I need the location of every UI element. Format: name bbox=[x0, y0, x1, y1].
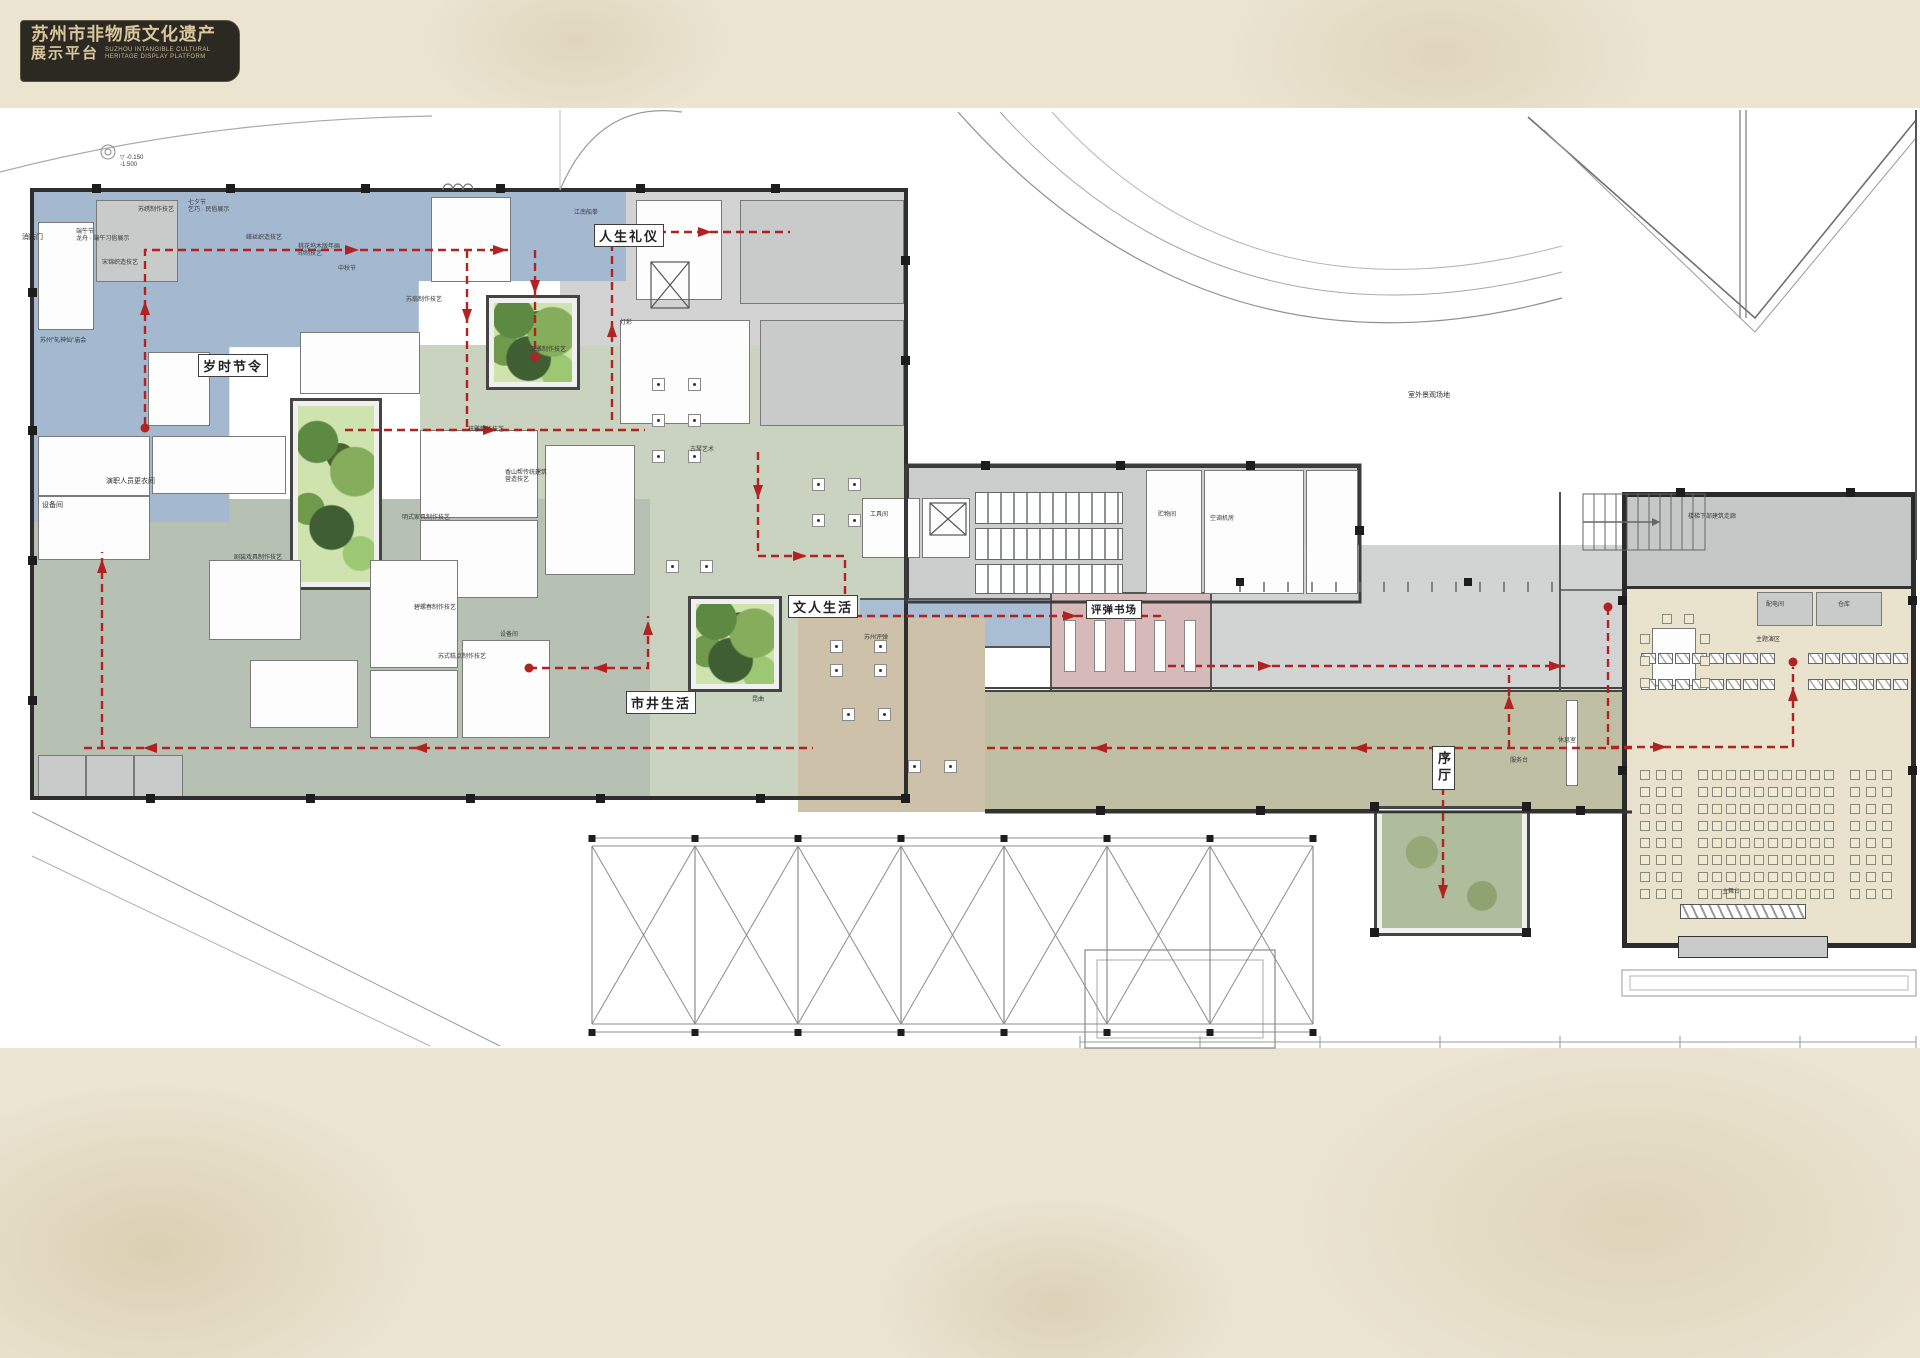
seat bbox=[1740, 821, 1750, 831]
exhibit-table bbox=[666, 560, 679, 573]
exhibit-table bbox=[652, 450, 665, 463]
plan-label: 苏式糕点制作技艺 bbox=[438, 654, 486, 661]
seat bbox=[1740, 804, 1750, 814]
plan-label: 香山帮传统建筑 营造技艺 bbox=[505, 470, 547, 484]
seat bbox=[1640, 787, 1650, 797]
seat bbox=[1882, 804, 1892, 814]
seat bbox=[1796, 770, 1806, 780]
seat bbox=[1866, 787, 1876, 797]
seat bbox=[1740, 770, 1750, 780]
bench-seat bbox=[1825, 653, 1840, 664]
plan-linework bbox=[0, 0, 1920, 1358]
exhibit-table bbox=[878, 708, 891, 721]
exhibit-table bbox=[688, 378, 701, 391]
seat bbox=[1866, 838, 1876, 848]
plan-label: 工具间 bbox=[870, 512, 888, 519]
bench-seat bbox=[1675, 653, 1690, 664]
bench-seat bbox=[1859, 653, 1874, 664]
seat bbox=[1882, 770, 1892, 780]
seat bbox=[1824, 821, 1834, 831]
bench-seat bbox=[1658, 653, 1673, 664]
plan-label: 文人生活 bbox=[788, 595, 858, 618]
seat bbox=[1810, 821, 1820, 831]
plan-label: 岁时节令 bbox=[198, 354, 268, 377]
plan-label: 市井生活 bbox=[626, 691, 696, 714]
exhibit-table bbox=[700, 560, 713, 573]
bench-seat bbox=[1760, 653, 1775, 664]
seat bbox=[1866, 804, 1876, 814]
seat bbox=[1810, 872, 1820, 882]
seat bbox=[1810, 838, 1820, 848]
seat bbox=[1782, 821, 1792, 831]
seat bbox=[1782, 872, 1792, 882]
seat bbox=[1640, 872, 1650, 882]
exhibit-table bbox=[652, 378, 665, 391]
seat bbox=[1810, 804, 1820, 814]
seat bbox=[1698, 889, 1708, 899]
seat bbox=[1850, 821, 1860, 831]
exhibit-table bbox=[908, 760, 921, 773]
seat bbox=[1672, 889, 1682, 899]
seat bbox=[1672, 770, 1682, 780]
seat bbox=[1712, 838, 1722, 848]
bench-seat bbox=[1842, 653, 1857, 664]
seat bbox=[1866, 821, 1876, 831]
bench-seat bbox=[1743, 679, 1758, 690]
seat bbox=[1640, 804, 1650, 814]
plan-label: 设备间 bbox=[42, 502, 63, 510]
seat bbox=[1796, 821, 1806, 831]
seat bbox=[1656, 889, 1666, 899]
bench-seat bbox=[1658, 679, 1673, 690]
plan-label: 设备间 bbox=[500, 632, 518, 639]
seat bbox=[1768, 855, 1778, 865]
plan-label: 主题演区 bbox=[1756, 637, 1780, 644]
seat bbox=[1824, 855, 1834, 865]
seat bbox=[1882, 821, 1892, 831]
seat bbox=[1768, 770, 1778, 780]
plan-label: 明式家具制作技艺 bbox=[402, 515, 450, 522]
floorplan-screenshot: 苏州市非物质文化遗产 展示平台 SUZHOU INTANGIBLE CULTUR… bbox=[0, 0, 1920, 1358]
exhibit-table bbox=[830, 664, 843, 677]
seat bbox=[1672, 821, 1682, 831]
bench-seat bbox=[1893, 653, 1908, 664]
seat bbox=[1726, 838, 1736, 848]
seat bbox=[1726, 821, 1736, 831]
plan-label: 序厅 bbox=[1432, 746, 1455, 790]
seat bbox=[1698, 787, 1708, 797]
seat bbox=[1656, 838, 1666, 848]
seat bbox=[1882, 889, 1892, 899]
seat bbox=[1810, 889, 1820, 899]
seat bbox=[1726, 804, 1736, 814]
seat bbox=[1850, 872, 1860, 882]
seat bbox=[1754, 804, 1764, 814]
seat bbox=[1640, 656, 1650, 666]
seat bbox=[1796, 855, 1806, 865]
plan-label: 昆曲 bbox=[752, 697, 764, 704]
wall-columns bbox=[28, 184, 1917, 937]
seat bbox=[1740, 855, 1750, 865]
seat bbox=[1712, 770, 1722, 780]
seat bbox=[1754, 770, 1764, 780]
seat bbox=[1796, 804, 1806, 814]
seat bbox=[1712, 855, 1722, 865]
seat bbox=[1768, 889, 1778, 899]
seat bbox=[1850, 787, 1860, 797]
seat bbox=[1662, 614, 1672, 624]
seat bbox=[1796, 889, 1806, 899]
seat bbox=[1782, 770, 1792, 780]
exhibit-table bbox=[848, 514, 861, 527]
bench-seat bbox=[1743, 653, 1758, 664]
plan-label: 贮物间 bbox=[1158, 512, 1176, 519]
seat bbox=[1672, 787, 1682, 797]
plan-label: 演职人员更衣间 bbox=[106, 478, 155, 486]
bench-seat bbox=[1726, 679, 1741, 690]
seat bbox=[1824, 889, 1834, 899]
plan-label: 苏州评弹 bbox=[864, 635, 888, 642]
plan-label: 人生礼仪 bbox=[594, 224, 664, 247]
plan-label: 室外景观场地 bbox=[1408, 392, 1450, 400]
seat bbox=[1824, 804, 1834, 814]
seat bbox=[1726, 855, 1736, 865]
plan-label: 缂丝织造技艺 bbox=[246, 235, 282, 242]
seat bbox=[1700, 656, 1710, 666]
seat bbox=[1712, 821, 1722, 831]
plan-label: 主舞台 bbox=[1722, 889, 1740, 896]
route-stop-dots bbox=[141, 353, 1798, 673]
plan-label: 苏州"轧神仙"庙会 bbox=[40, 338, 86, 345]
seat bbox=[1640, 821, 1650, 831]
seat bbox=[1740, 787, 1750, 797]
seat bbox=[1754, 872, 1764, 882]
seat bbox=[1850, 889, 1860, 899]
seat bbox=[1754, 821, 1764, 831]
seat bbox=[1768, 838, 1778, 848]
seat bbox=[1866, 770, 1876, 780]
exhibit-table bbox=[830, 640, 843, 653]
exhibit-table bbox=[848, 478, 861, 491]
seat bbox=[1640, 634, 1650, 644]
exhibit-table bbox=[812, 478, 825, 491]
seat bbox=[1796, 838, 1806, 848]
seat bbox=[1824, 770, 1834, 780]
plan-label: 苏绣制作技艺 bbox=[138, 207, 174, 214]
exhibit-table bbox=[812, 514, 825, 527]
plan-label: ▽ -0.150 -1.500 bbox=[120, 155, 143, 169]
plan-label: 桃花坞木版年画 印制技艺 bbox=[298, 244, 340, 258]
plan-label: 仓库 bbox=[1838, 602, 1850, 609]
plan-label: 苏扇制作技艺 bbox=[406, 297, 442, 304]
plan-label: 端午节 龙舟 · 端午习俗展示 bbox=[76, 229, 129, 243]
plan-label: 消防门 bbox=[22, 234, 43, 242]
seat bbox=[1656, 821, 1666, 831]
seat bbox=[1640, 770, 1650, 780]
seat bbox=[1698, 855, 1708, 865]
seat bbox=[1700, 634, 1710, 644]
seat bbox=[1866, 855, 1876, 865]
exhibit-table bbox=[842, 708, 855, 721]
exhibit-table bbox=[688, 414, 701, 427]
plan-label: 核雕制作技艺 bbox=[468, 427, 504, 434]
seat bbox=[1698, 872, 1708, 882]
seat bbox=[1850, 838, 1860, 848]
seat bbox=[1824, 838, 1834, 848]
seat bbox=[1656, 787, 1666, 797]
seat bbox=[1672, 855, 1682, 865]
seat bbox=[1754, 889, 1764, 899]
seat bbox=[1782, 787, 1792, 797]
plan-label: 评弹书场 bbox=[1086, 600, 1142, 619]
seat bbox=[1782, 855, 1792, 865]
seat bbox=[1850, 804, 1860, 814]
exhibit-table bbox=[874, 664, 887, 677]
seat bbox=[1672, 804, 1682, 814]
seat bbox=[1684, 614, 1694, 624]
seat bbox=[1640, 889, 1650, 899]
bench-seat bbox=[1876, 679, 1891, 690]
seat bbox=[1768, 872, 1778, 882]
seat bbox=[1810, 855, 1820, 865]
seat bbox=[1698, 804, 1708, 814]
plan-label: 服务台 bbox=[1510, 758, 1528, 765]
seat bbox=[1824, 872, 1834, 882]
bench-seat bbox=[1893, 679, 1908, 690]
seat bbox=[1754, 787, 1764, 797]
plan-label: 宋锦织造技艺 bbox=[102, 260, 138, 267]
seat bbox=[1672, 838, 1682, 848]
bench-seat bbox=[1876, 653, 1891, 664]
seat bbox=[1740, 889, 1750, 899]
plan-label: 楼梯下部建筑走廊 bbox=[1688, 514, 1736, 521]
bench-seat bbox=[1760, 679, 1775, 690]
seat bbox=[1796, 872, 1806, 882]
bench-seat bbox=[1709, 653, 1724, 664]
plan-label: 古琴艺术 bbox=[690, 447, 714, 454]
plan-label: 休息室 bbox=[1558, 738, 1576, 745]
seat bbox=[1712, 804, 1722, 814]
bench-seat bbox=[1808, 679, 1823, 690]
exhibit-table bbox=[944, 760, 957, 773]
seat bbox=[1656, 872, 1666, 882]
seat bbox=[1700, 678, 1710, 688]
seat bbox=[1796, 787, 1806, 797]
plan-label: 灯彩 bbox=[620, 320, 632, 327]
plan-label: 碧螺春制作技艺 bbox=[414, 605, 456, 612]
seat bbox=[1782, 838, 1792, 848]
seat bbox=[1882, 838, 1892, 848]
seat bbox=[1640, 678, 1650, 688]
seat bbox=[1712, 787, 1722, 797]
seat bbox=[1810, 770, 1820, 780]
seat bbox=[1640, 838, 1650, 848]
seat bbox=[1782, 804, 1792, 814]
bench-seat bbox=[1842, 679, 1857, 690]
seat bbox=[1882, 855, 1892, 865]
seat bbox=[1726, 787, 1736, 797]
seat bbox=[1740, 838, 1750, 848]
seat bbox=[1866, 872, 1876, 882]
seat bbox=[1768, 804, 1778, 814]
seat bbox=[1698, 770, 1708, 780]
plan-label: 江南船拳 bbox=[574, 210, 598, 217]
plan-label: 空调机房 bbox=[1210, 516, 1234, 523]
seat bbox=[1882, 787, 1892, 797]
timber-deck-trellis bbox=[589, 835, 1317, 1036]
plan-label: 七夕节 乞巧 · 民俗展示 bbox=[188, 200, 229, 214]
seat bbox=[1712, 872, 1722, 882]
seat bbox=[1882, 872, 1892, 882]
bench-seat bbox=[1726, 653, 1741, 664]
seat bbox=[1740, 872, 1750, 882]
plan-label: 剧装戏具制作技艺 bbox=[234, 555, 282, 562]
seat bbox=[1640, 855, 1650, 865]
seat bbox=[1698, 821, 1708, 831]
bench-seat bbox=[1859, 679, 1874, 690]
seat bbox=[1656, 804, 1666, 814]
seat bbox=[1782, 889, 1792, 899]
exhibit-table bbox=[652, 414, 665, 427]
bench-seat bbox=[1808, 653, 1823, 664]
seat bbox=[1850, 770, 1860, 780]
plan-label: 中秋节 bbox=[338, 266, 356, 273]
seat bbox=[1866, 889, 1876, 899]
seat bbox=[1656, 770, 1666, 780]
bench-seat bbox=[1825, 679, 1840, 690]
seat bbox=[1656, 855, 1666, 865]
seat bbox=[1810, 787, 1820, 797]
seat bbox=[1712, 889, 1722, 899]
seat bbox=[1850, 855, 1860, 865]
seat bbox=[1672, 872, 1682, 882]
bench-seat bbox=[1709, 679, 1724, 690]
seat bbox=[1768, 821, 1778, 831]
bench-seat bbox=[1675, 679, 1690, 690]
seat bbox=[1698, 838, 1708, 848]
seat bbox=[1768, 787, 1778, 797]
seat bbox=[1726, 770, 1736, 780]
plan-label: 玉雕制作技艺 bbox=[530, 347, 566, 354]
seat bbox=[1824, 787, 1834, 797]
seat bbox=[1726, 872, 1736, 882]
seat bbox=[1754, 838, 1764, 848]
plan-label: 配电间 bbox=[1766, 602, 1784, 609]
seat bbox=[1754, 855, 1764, 865]
